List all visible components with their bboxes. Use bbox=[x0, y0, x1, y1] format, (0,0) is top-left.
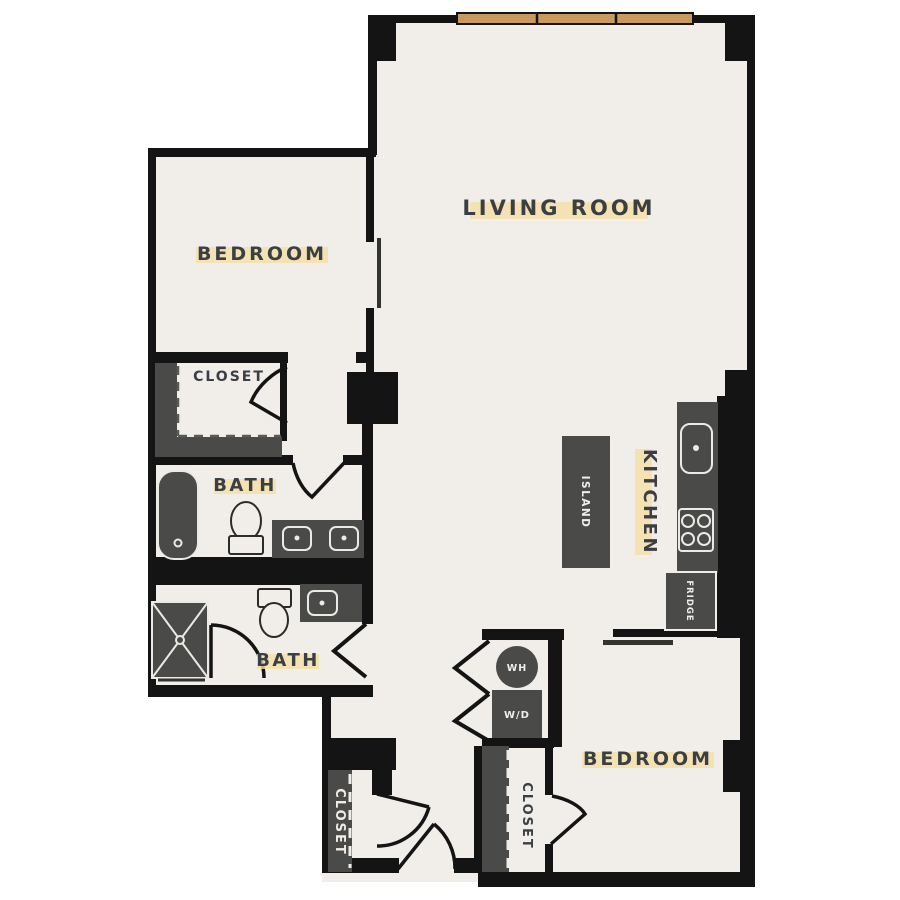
fridge-label: FRIDGE bbox=[684, 580, 694, 621]
closet-lower-label: CLOSET bbox=[519, 782, 534, 850]
windows bbox=[457, 13, 693, 24]
floor-plan-page: LIVING ROOM BEDROOM BEDROOM BATH BATH KI… bbox=[0, 0, 900, 900]
toilet-bowl bbox=[231, 502, 261, 540]
bedroom-upper-label: BEDROOM bbox=[197, 243, 327, 265]
bath-upper-label: BATH bbox=[213, 475, 277, 496]
bedroom-upper-pocket-door bbox=[377, 238, 381, 308]
kitchen-label: KITCHEN bbox=[639, 449, 660, 555]
washer-dryer-label: W/D bbox=[504, 710, 530, 721]
island-label: ISLAND bbox=[579, 476, 591, 529]
single-vanity bbox=[300, 584, 362, 622]
double-vanity bbox=[272, 520, 364, 558]
living-room-label: LIVING ROOM bbox=[462, 196, 655, 220]
floor-plan-svg: LIVING ROOM BEDROOM BEDROOM BATH BATH KI… bbox=[0, 0, 900, 900]
shower-drain bbox=[176, 636, 184, 644]
bedroom-lower-pocket-door bbox=[603, 640, 673, 645]
water-heater-label: WH bbox=[507, 663, 527, 674]
closet-entry-label: CLOSET bbox=[332, 788, 347, 856]
closet-upper-label: CLOSET bbox=[193, 369, 265, 385]
toilet-tank bbox=[229, 536, 263, 554]
bath-lower-label: BATH bbox=[256, 650, 320, 671]
bedroom-lower-label: BEDROOM bbox=[583, 748, 713, 770]
toilet-bowl bbox=[260, 603, 288, 637]
